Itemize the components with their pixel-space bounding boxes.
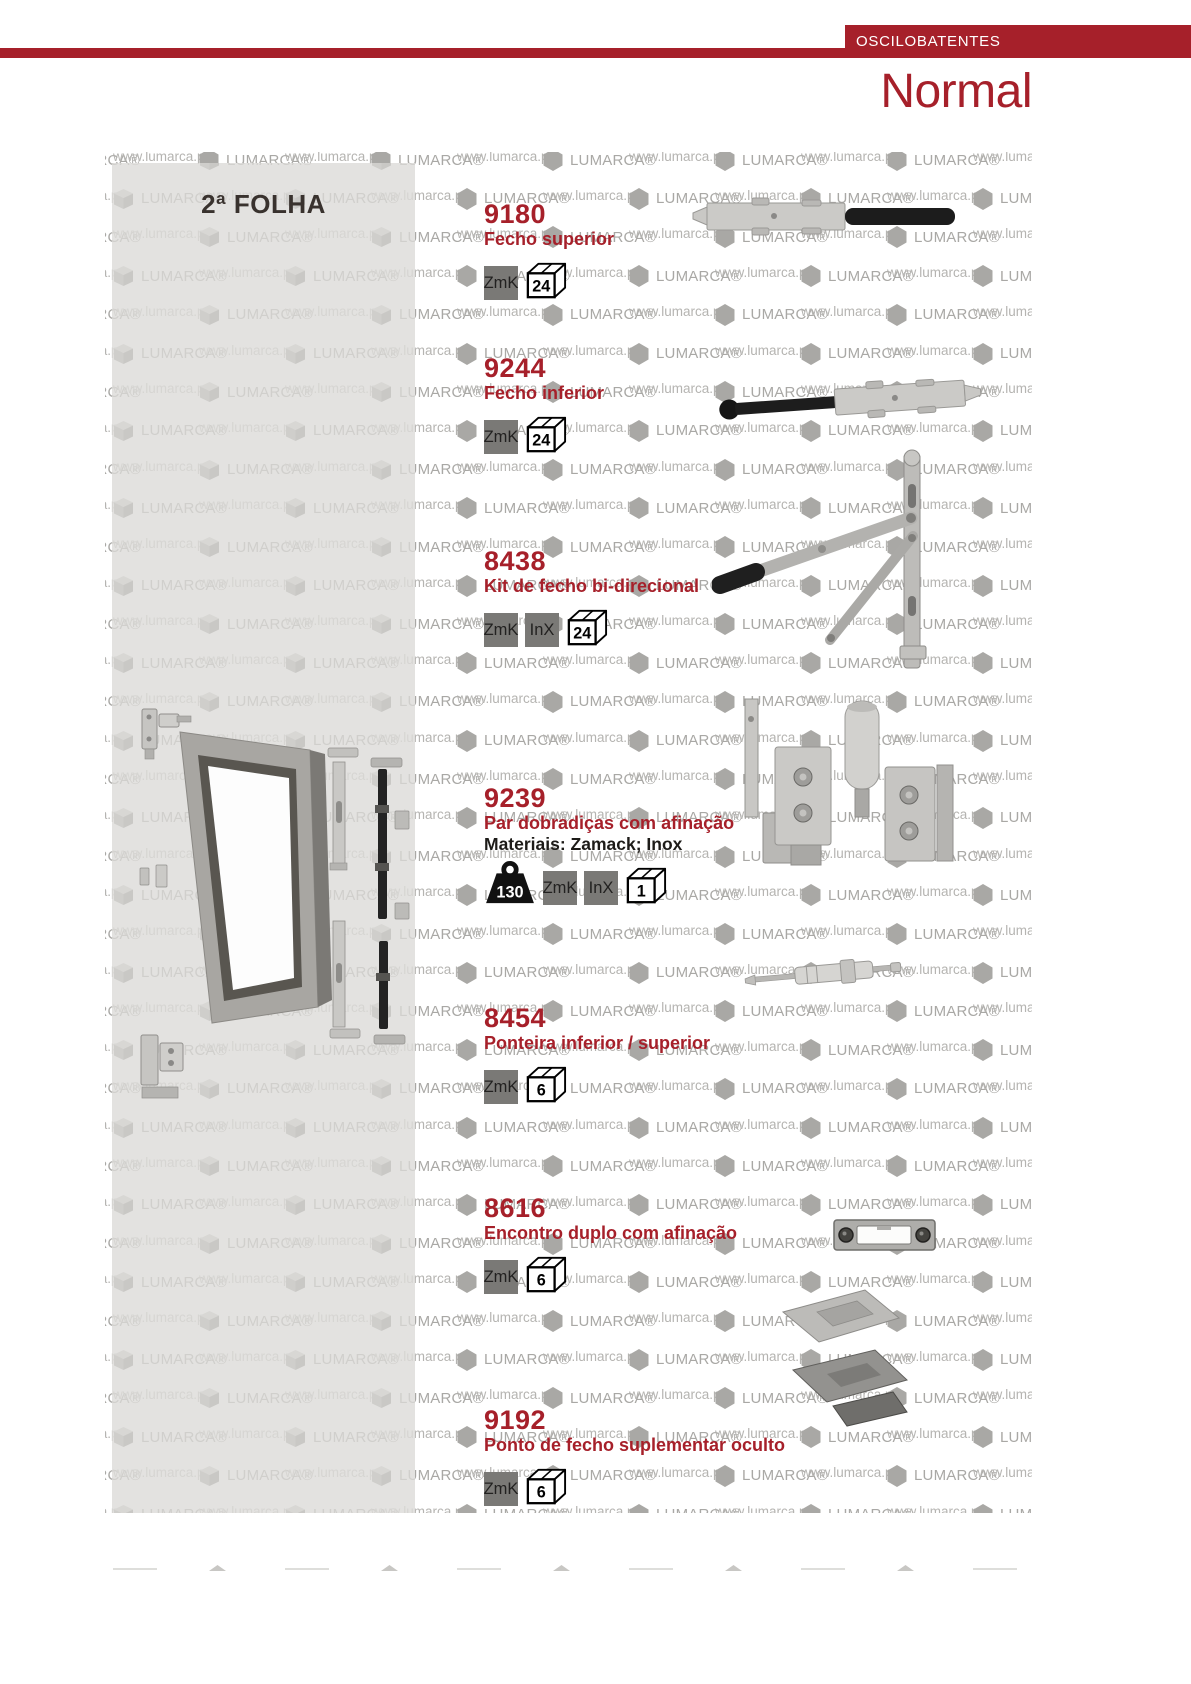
product-name: Ponteira inferior / superior [484, 1034, 710, 1053]
content-area: LUMARCA®www.lumarca.ptLUMARCA®www.lumarc… [105, 152, 1032, 1513]
product-code: 8454 [484, 1006, 710, 1030]
cropped-hexagon-mark [725, 1565, 742, 1571]
materials-note: Materiais: Zamack; Inox [484, 835, 734, 854]
product-badges: ZmK6 [484, 1462, 785, 1506]
material-badge-zmk: ZmK [484, 613, 518, 647]
cropped-hexagon-mark [553, 1565, 570, 1571]
product-9192: 9192Ponto de fecho suplementar ocultoZmK… [484, 1408, 785, 1506]
cropped-text-mark [973, 1568, 1017, 1570]
product-badges: ZmK6 [484, 1250, 737, 1294]
product-code: 9192 [484, 1408, 785, 1432]
product-9180: 9180Fecho superiorZmK24 [484, 202, 614, 300]
box-quantity-value: 6 [537, 1483, 546, 1501]
product-9239: 9239Par dobradiças com afinaçãoMateriais… [484, 786, 734, 905]
product-code: 9180 [484, 202, 614, 226]
material-badge-inx: InX [584, 871, 618, 905]
material-badge-zmk: ZmK [484, 1070, 518, 1104]
weight-value: 130 [496, 883, 523, 901]
cropped-text-mark [629, 1568, 673, 1570]
box-quantity-icon: 1 [625, 865, 667, 905]
product-badges: 130ZmKInX1 [484, 861, 734, 905]
box-quantity-value: 24 [532, 431, 550, 449]
material-badge-zmk: ZmK [543, 871, 577, 905]
cropped-text-mark [285, 1568, 329, 1570]
box-quantity-value: 6 [537, 1271, 546, 1289]
product-photo-9192 [775, 1286, 915, 1436]
product-badges: ZmKInX24 [484, 603, 699, 647]
product-8454: 8454Ponteira inferior / superiorZmK6 [484, 1006, 710, 1104]
product-code: 8438 [484, 549, 699, 573]
product-photo-9239 [733, 695, 958, 867]
material-badge-zmk: ZmK [484, 1472, 518, 1506]
box-quantity-icon: 24 [525, 260, 567, 300]
product-name: Fecho inferior [484, 384, 604, 403]
cropped-hexagon-mark [897, 1565, 914, 1571]
box-quantity-icon: 6 [525, 1254, 567, 1294]
product-name: Ponto de fecho suplementar oculto [484, 1436, 785, 1455]
cropped-text-mark [113, 1568, 157, 1570]
product-code: 9239 [484, 786, 734, 810]
product-name: Encontro duplo com afinação [484, 1224, 737, 1243]
product-name: Kit de fecho bi-direcional [484, 577, 699, 596]
product-code: 9244 [484, 356, 604, 380]
product-9244: 9244Fecho inferiorZmK24 [484, 356, 604, 454]
box-quantity-icon: 24 [525, 414, 567, 454]
product-badges: ZmK24 [484, 256, 614, 300]
product-badges: ZmK6 [484, 1060, 710, 1104]
catalog-page: OSCILOBATENTES Normal LUMARCA®www.lumarc… [0, 0, 1191, 1684]
material-badge-inx: InX [525, 613, 559, 647]
product-code: 8616 [484, 1196, 737, 1220]
product-name: Par dobradiças com afinação [484, 814, 734, 833]
box-quantity-value: 1 [637, 882, 646, 900]
cropped-hexagon-mark [381, 1565, 398, 1571]
box-quantity-icon: 24 [566, 607, 608, 647]
product-photo-8438 [712, 448, 952, 676]
product-8616: 8616Encontro duplo com afinaçãoZmK6 [484, 1196, 737, 1294]
box-quantity-value: 24 [573, 624, 591, 642]
product-name: Fecho superior [484, 230, 614, 249]
material-badge-zmk: ZmK [484, 420, 518, 454]
product-badges: ZmK24 [484, 410, 604, 454]
material-badge-zmk: ZmK [484, 266, 518, 300]
header-rule [0, 48, 1191, 58]
product-photo-9180 [690, 192, 960, 244]
box-quantity-value: 24 [532, 277, 550, 295]
product-photo-8616 [832, 1213, 938, 1255]
material-badge-zmk: ZmK [484, 1260, 518, 1294]
box-quantity-value: 6 [537, 1081, 546, 1099]
page-title: Normal [880, 64, 1032, 119]
box-quantity-icon: 6 [525, 1064, 567, 1104]
cropped-hexagon-mark [209, 1565, 226, 1571]
box-quantity-icon: 6 [525, 1466, 567, 1506]
cropped-text-mark [457, 1568, 501, 1570]
weight-icon: 130 [484, 861, 536, 905]
product-8438: 8438Kit de fecho bi-direcionalZmKInX24 [484, 549, 699, 647]
cropped-text-mark [801, 1568, 845, 1570]
